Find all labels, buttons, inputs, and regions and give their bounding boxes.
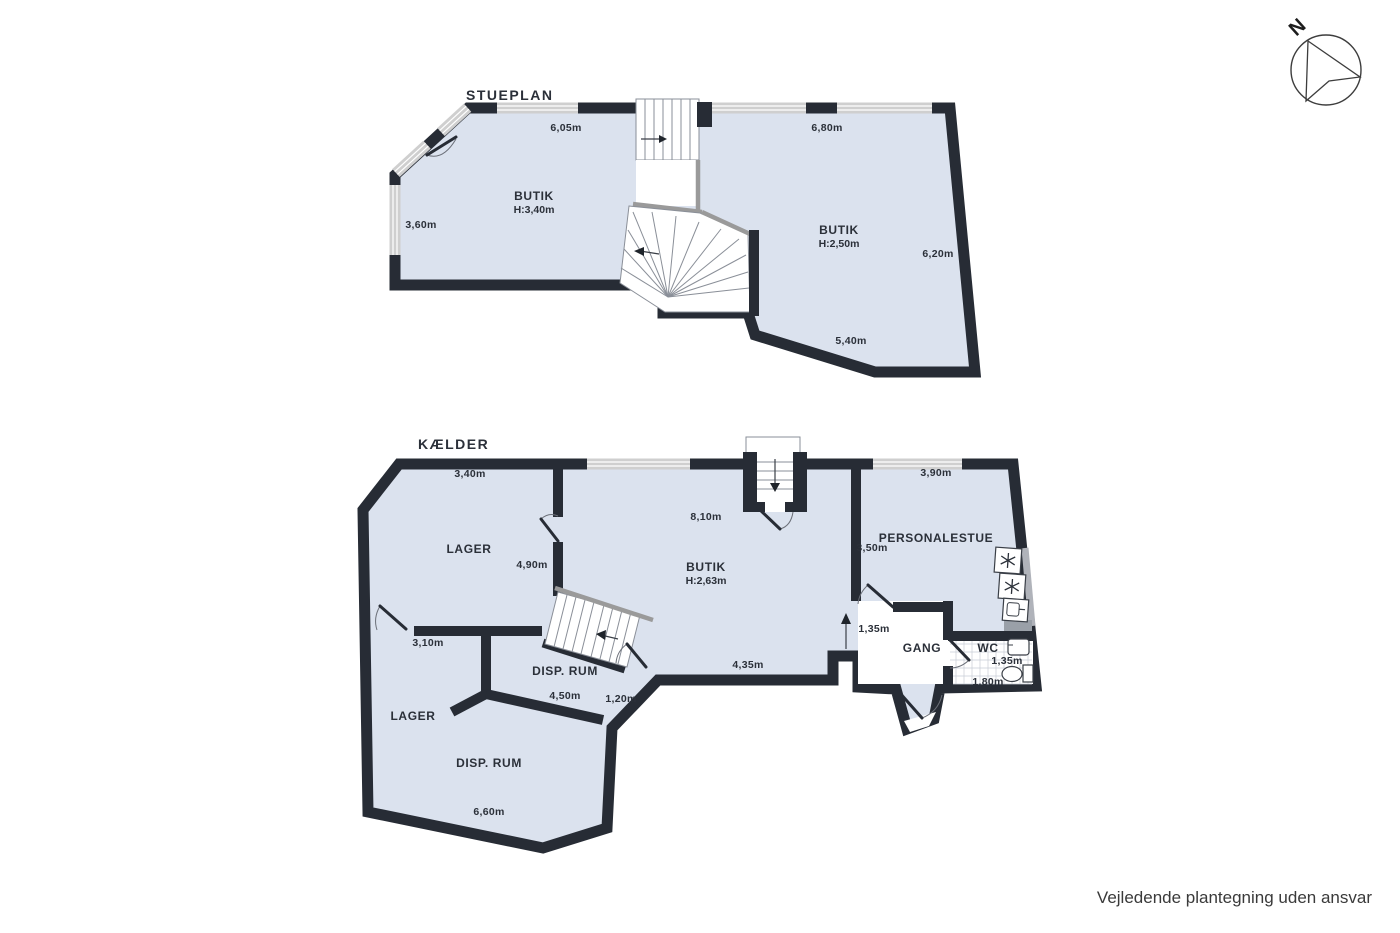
kaelder-dim-butik-bottom: 4,35m [732, 659, 763, 671]
stueplan-dim-right: 6,20m [922, 248, 953, 260]
kaelder-dim-pers-left: 3,50m [856, 542, 887, 554]
kaelder-dim-top-mid: 8,10m [690, 511, 721, 523]
kaelder-dim-top-left: 3,40m [454, 468, 485, 480]
wc-sink-icon [1008, 639, 1029, 655]
gang-label: GANG [903, 641, 941, 655]
stueplan-dim-top-right: 6,80m [811, 122, 842, 134]
stueplan-dim-top-left: 6,05m [550, 122, 581, 134]
stueplan-plan: STUEPLAN BUTIK H:3,40m BUTIK H:2,50m 6,0… [390, 87, 976, 372]
kaelder-dim-disp-bottom: 6,60m [473, 806, 504, 818]
kaelder-dim-lager-bottom: 3,10m [412, 637, 443, 649]
stueplan-title: STUEPLAN [466, 87, 553, 103]
stueplan-butik-left-label: BUTIK [514, 189, 554, 203]
kaelder-dim-disp-top: 4,50m [549, 690, 580, 702]
kaelder-dim-lager-right: 4,90m [516, 559, 547, 571]
kaelder-dim-wc-height: 1,80m [972, 676, 1003, 688]
stueplan-dim-bottom: 5,40m [835, 335, 866, 347]
kaelder-dim-passage: 1,35m [858, 623, 889, 635]
stueplan-dim-left: 3,60m [405, 219, 436, 231]
toilet-bowl-icon [1002, 667, 1022, 682]
kaelder-plan: KÆLDER LAGER BUTIK H:2,63m PERSONALESTUE… [363, 436, 1036, 848]
lager-top-label: LAGER [447, 542, 492, 556]
kaelder-butik-height: H:2,63m [686, 575, 727, 587]
kaelder-butik-label: BUTIK [686, 560, 726, 574]
floor-plan-canvas: STUEPLAN BUTIK H:3,40m BUTIK H:2,50m 6,0… [0, 0, 1400, 933]
kaelder-dim-wc-width: 1,35m [991, 655, 1022, 667]
kaelder-dim-top-right: 3,90m [920, 467, 951, 479]
wc-label: WC [977, 641, 998, 655]
compass-icon: N [1285, 15, 1361, 105]
disp-rum-bottom-label: DISP. RUM [456, 756, 522, 770]
stueplan-butik-left-height: H:3,40m [514, 204, 555, 216]
stueplan-butik-right-label: BUTIK [819, 223, 859, 237]
kaelder-dim-disp-edge: 1,20m [605, 693, 636, 705]
kaelder-title: KÆLDER [418, 436, 489, 452]
personalestue-label: PERSONALESTUE [879, 531, 993, 545]
lager-bottom-label: LAGER [391, 709, 436, 723]
toilet-tank-icon [1023, 665, 1033, 682]
compass-north-label: N [1285, 15, 1310, 41]
disclaimer-text: Vejledende plantegning uden ansvar [1097, 888, 1372, 908]
stueplan-butik-right-height: H:2,50m [819, 238, 860, 250]
floor-plan-page: STUEPLAN BUTIK H:3,40m BUTIK H:2,50m 6,0… [0, 0, 1400, 933]
disp-rum-top-label: DISP. RUM [532, 664, 598, 678]
